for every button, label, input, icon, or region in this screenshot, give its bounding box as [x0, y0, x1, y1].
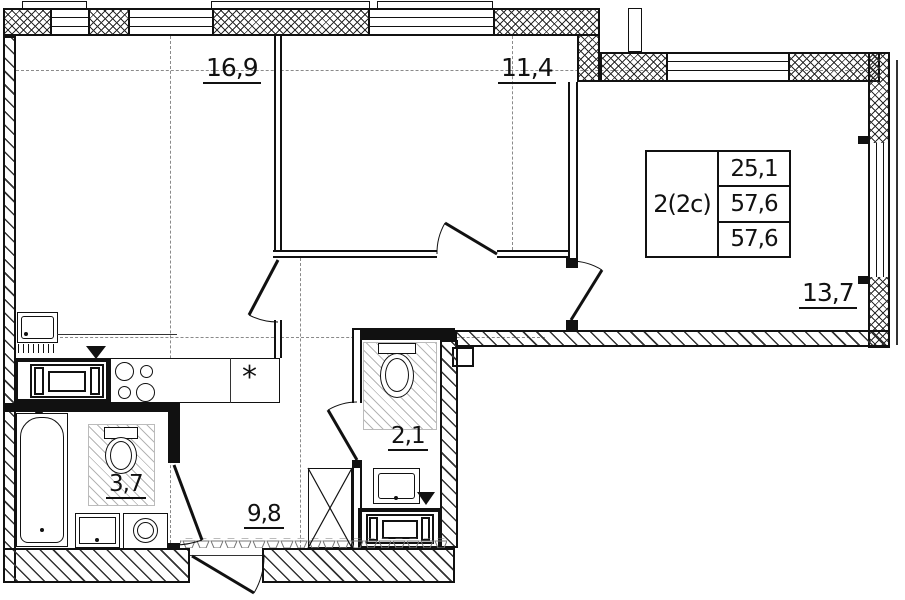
entry-landing-strip	[180, 538, 447, 548]
door-wc	[328, 402, 357, 460]
wardrobe-cross	[308, 468, 352, 548]
door-entry	[192, 556, 264, 593]
door-room	[571, 261, 602, 320]
door-bathroom	[174, 465, 202, 545]
doors-overlay	[0, 0, 905, 600]
floor-plan: * 16,9 11,4 13,7 2,1 3,7 9,8 2(2с) 25,1 …	[0, 0, 905, 600]
door-bedroom	[437, 223, 497, 254]
door-living	[249, 260, 278, 322]
